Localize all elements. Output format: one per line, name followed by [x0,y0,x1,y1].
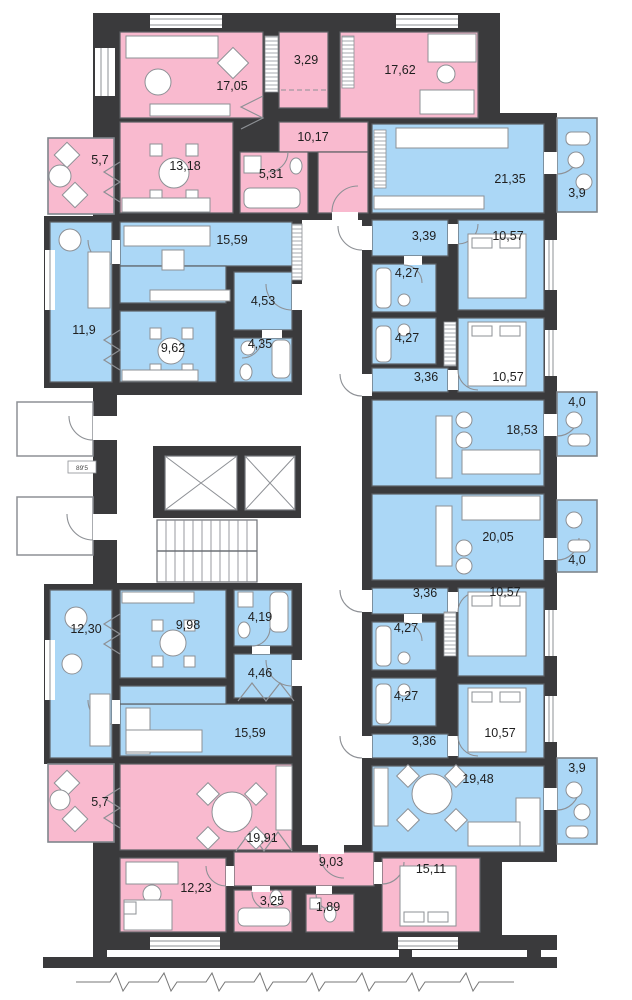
stool-icon [566,512,582,528]
window-icon [150,15,222,28]
stool-icon [566,412,582,428]
elevator-icon [245,456,295,510]
lounge-chair-icon [566,132,590,145]
bathtub-icon [244,188,300,208]
radiator-icon [374,130,386,188]
stool-icon [566,782,582,798]
toilet-icon [240,364,252,380]
exterior-notch-bottom-right [502,862,557,935]
window-icon [95,48,115,96]
room-area-label: 4,19 [248,610,272,624]
room-area-label: 3,25 [260,894,284,908]
room-area-label: 5,31 [259,167,283,181]
room-area-label: 9,03 [319,855,343,869]
chair-icon [152,656,163,667]
lounge-chair-icon [566,826,588,838]
sink-icon [398,294,410,306]
room [279,32,328,108]
room-area-label: 17,05 [216,79,247,93]
coffee-table-icon [145,69,171,95]
window-icon [45,250,55,310]
elevator-icon [165,456,237,510]
room-area-label: 4,46 [248,666,272,680]
chair-icon [184,656,195,667]
room-area-label: 4,35 [248,337,272,351]
sink-icon [398,652,410,664]
sofa-icon [462,496,540,520]
bathtub-icon [270,592,288,632]
bathtub-icon [238,908,290,926]
room-area-label: 19,48 [462,772,493,786]
window-icon [45,640,55,700]
floor-plan-canvas: 89'5 [0,0,632,1000]
room-area-label: 3,36 [414,370,438,384]
kitchen-island-icon [436,416,452,478]
core-note: 89'5 [68,461,96,473]
room [372,220,448,256]
room-area-label: 4,0 [568,395,585,409]
bed-icon [468,688,526,752]
room-area-label: 13,18 [169,159,200,173]
sofa-icon [88,252,110,308]
bathtub-icon [376,684,391,724]
sideboard-icon [150,290,230,301]
desk-icon [428,34,476,62]
chair-icon [150,144,162,156]
core-note-label: 89'5 [76,465,88,472]
exterior-notch-top-right [500,13,557,113]
table-icon [62,654,82,674]
open-terrace-upper [17,402,93,456]
room-area-label: 10,17 [297,130,328,144]
chair-icon [150,328,161,339]
room-area-label: 1,89 [316,900,340,914]
room-area-label: 20,05 [482,530,513,544]
room-area-label: 3,39 [412,229,436,243]
table-icon [162,250,184,270]
stool-icon [574,804,590,820]
washer-icon [238,592,253,607]
bathtub-icon [272,340,290,378]
kitchen-counter-icon [276,766,292,830]
room-area-label: 17,62 [384,63,415,77]
ground-line [76,973,514,991]
window-icon [398,937,458,949]
stool-icon [568,152,584,168]
window-icon [545,610,557,656]
room [372,734,448,758]
kitchen-counter-icon [374,768,388,826]
room-area-label: 10,57 [492,370,523,384]
toilet-icon [290,158,302,174]
kitchen-counter-icon [374,196,484,209]
sideboard-icon [150,104,230,116]
bed-icon [124,900,172,930]
window-icon [545,330,557,376]
open-terrace-lower [17,497,93,555]
room-area-label: 10,57 [484,726,515,740]
lounge-chair-icon [568,540,590,552]
room-area-label: 4,27 [395,331,419,345]
room-area-label: 9,98 [176,618,200,632]
bed-icon [468,592,526,656]
room-area-label: 4,27 [394,621,418,635]
stool-icon [456,432,472,448]
room [318,152,368,213]
radiator-icon [342,36,354,88]
window-icon [150,937,220,949]
room-area-label: 12,30 [70,622,101,636]
stairs-icon [157,520,257,582]
toilet-icon [238,622,250,638]
room-area-label: 19,91 [246,831,277,845]
wardrobe-icon [265,36,278,92]
stool-icon [456,412,472,428]
room-area-label: 4,53 [251,294,275,308]
chair-icon [152,620,163,631]
window-icon [545,696,557,742]
room-area-label: 5,7 [91,795,108,809]
table-icon [50,790,70,810]
bathtub-icon [376,268,391,308]
room-area-label: 18,53 [506,423,537,437]
bed-icon [468,234,526,298]
room-area-label: 4,0 [568,553,585,567]
chair-icon [437,65,455,83]
table-icon [49,165,71,187]
room [234,852,374,886]
room-area-label: 10,57 [492,229,523,243]
wardrobe-icon [292,224,302,280]
room-area-label: 3,36 [413,586,437,600]
room-area-label: 12,23 [180,881,211,895]
corridor [302,220,362,845]
bathtub-icon [376,626,391,666]
room-area-label: 10,57 [489,585,520,599]
sofa-icon [90,694,110,746]
bathtub-icon [376,326,391,362]
bed-icon [420,90,474,114]
room-area-label: 4,27 [394,689,418,703]
sofa-icon [468,822,520,846]
room-area-label: 11,9 [72,323,95,337]
wardrobe-icon [444,612,456,656]
desk-icon [126,862,178,884]
room-area-label: 3,9 [568,186,585,200]
kitchen-counter-icon [122,370,198,381]
room-area-label: 3,9 [568,761,585,775]
room-area-label: 3,29 [294,53,318,67]
kitchen-island-icon [436,506,452,566]
table-icon [59,229,81,251]
room-area-label: 5,7 [91,153,108,167]
room-area-label: 9,62 [161,341,185,355]
room-area-label: 3,36 [412,734,436,748]
room-area-label: 15,11 [416,862,446,876]
stool-icon [456,558,472,574]
chair-icon [182,328,193,339]
sofa-icon [462,450,540,474]
room [120,686,226,704]
chair-icon [186,144,198,156]
stool-icon [456,540,472,556]
window-icon [396,15,458,28]
sofa-icon [396,128,508,148]
sofa-icon [126,730,202,752]
room-area-label: 15,59 [234,726,265,740]
kitchen-counter-icon [122,592,194,603]
lounge-chair-icon [568,434,590,446]
room-area-label: 15,59 [216,233,247,247]
room-area-label: 4,27 [395,266,419,280]
wardrobe-icon [444,322,456,366]
floor-plan: 89'5 [0,0,632,1000]
window-icon [545,240,557,290]
room-area-label: 21,35 [494,172,525,186]
kitchen-counter-icon [122,198,210,212]
sofa-icon [124,226,210,246]
sofa-icon [126,36,218,58]
